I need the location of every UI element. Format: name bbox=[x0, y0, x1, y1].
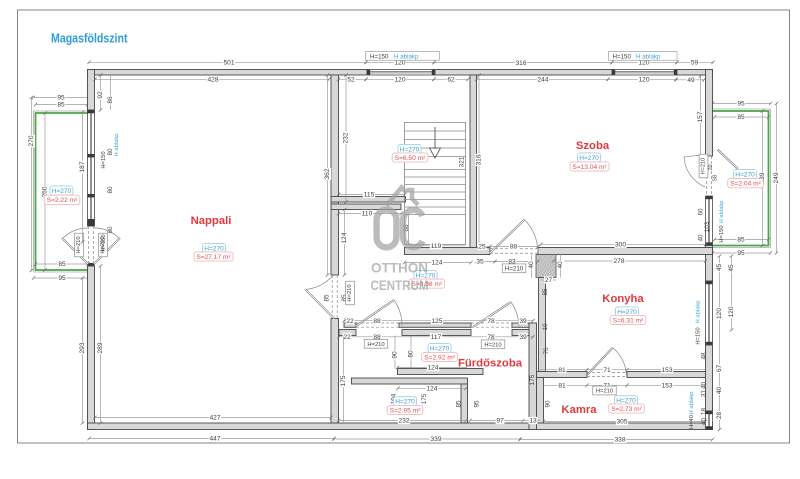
svg-text:H=40: H=40 bbox=[689, 415, 695, 429]
svg-text:289: 289 bbox=[97, 342, 104, 353]
svg-text:45: 45 bbox=[716, 264, 723, 272]
svg-text:60: 60 bbox=[107, 226, 114, 234]
svg-text:88: 88 bbox=[373, 318, 381, 325]
svg-text:H=150: H=150 bbox=[696, 327, 702, 344]
svg-text:103: 103 bbox=[704, 221, 711, 232]
svg-text:H ablakp: H ablakp bbox=[114, 134, 120, 157]
svg-text:153: 153 bbox=[661, 383, 672, 390]
svg-text:52: 52 bbox=[347, 77, 355, 84]
svg-text:40: 40 bbox=[528, 261, 535, 269]
svg-text:48: 48 bbox=[701, 352, 708, 360]
svg-text:H=210: H=210 bbox=[701, 158, 707, 174]
svg-text:85: 85 bbox=[57, 102, 65, 109]
svg-text:124: 124 bbox=[431, 260, 442, 267]
svg-text:316: 316 bbox=[476, 154, 483, 165]
svg-text:249: 249 bbox=[773, 172, 780, 183]
svg-text:S=6.50 m²: S=6.50 m² bbox=[395, 155, 426, 162]
svg-text:175: 175 bbox=[340, 375, 347, 386]
svg-text:125: 125 bbox=[431, 318, 442, 325]
svg-text:124: 124 bbox=[426, 386, 437, 393]
svg-text:80: 80 bbox=[408, 350, 415, 358]
svg-text:71: 71 bbox=[603, 367, 611, 374]
svg-text:H ablakp: H ablakp bbox=[696, 301, 702, 324]
svg-text:H=270: H=270 bbox=[52, 188, 72, 195]
svg-text:76: 76 bbox=[543, 347, 550, 355]
svg-text:Konyha: Konyha bbox=[602, 293, 644, 305]
svg-text:H ablakp: H ablakp bbox=[689, 392, 695, 415]
svg-text:67: 67 bbox=[716, 365, 723, 373]
svg-text:124: 124 bbox=[341, 232, 348, 243]
svg-text:31: 31 bbox=[701, 390, 708, 398]
svg-text:90: 90 bbox=[392, 351, 399, 359]
svg-text:H=150: H=150 bbox=[613, 53, 632, 60]
svg-text:40: 40 bbox=[716, 387, 723, 395]
svg-text:13: 13 bbox=[529, 418, 537, 425]
svg-text:Kamra: Kamra bbox=[561, 404, 597, 416]
svg-text:110: 110 bbox=[362, 211, 373, 218]
svg-text:447: 447 bbox=[209, 436, 220, 443]
svg-text:95: 95 bbox=[474, 400, 481, 408]
svg-text:81: 81 bbox=[558, 383, 566, 390]
svg-text:H=210: H=210 bbox=[505, 266, 524, 273]
svg-text:S=2.92 m²: S=2.92 m² bbox=[424, 354, 455, 361]
svg-text:18: 18 bbox=[701, 408, 708, 416]
svg-text:35: 35 bbox=[476, 259, 484, 266]
svg-text:H=150: H=150 bbox=[370, 53, 389, 60]
svg-text:175: 175 bbox=[529, 374, 536, 385]
svg-text:60: 60 bbox=[698, 208, 705, 216]
svg-text:278: 278 bbox=[613, 258, 624, 265]
svg-text:117: 117 bbox=[431, 334, 442, 341]
svg-text:22: 22 bbox=[343, 334, 351, 341]
svg-text:40: 40 bbox=[698, 234, 705, 242]
svg-text:85: 85 bbox=[542, 288, 549, 296]
svg-text:S=2.04 m²: S=2.04 m² bbox=[730, 181, 761, 188]
svg-text:H=210: H=210 bbox=[484, 343, 501, 349]
svg-text:339: 339 bbox=[430, 436, 441, 443]
svg-text:92: 92 bbox=[97, 91, 104, 99]
svg-text:427: 427 bbox=[209, 415, 220, 422]
svg-text:70: 70 bbox=[708, 164, 714, 170]
svg-text:H=270: H=270 bbox=[204, 245, 224, 252]
svg-text:78: 78 bbox=[487, 318, 495, 325]
svg-text:S=2.95 m²: S=2.95 m² bbox=[390, 407, 421, 414]
svg-text:244: 244 bbox=[537, 77, 548, 84]
svg-text:OTTHON: OTTHON bbox=[371, 261, 428, 276]
svg-text:90: 90 bbox=[545, 400, 552, 408]
svg-text:119: 119 bbox=[431, 243, 442, 250]
svg-text:H=210: H=210 bbox=[367, 342, 384, 348]
svg-text:S=13.04 m²: S=13.04 m² bbox=[572, 164, 607, 171]
svg-text:153: 153 bbox=[661, 367, 672, 374]
svg-text:175: 175 bbox=[421, 393, 428, 404]
svg-text:95: 95 bbox=[737, 101, 745, 108]
svg-text:Magasföldszint: Magasföldszint bbox=[51, 31, 128, 46]
svg-text:H=270: H=270 bbox=[430, 346, 450, 353]
svg-text:62: 62 bbox=[447, 77, 455, 84]
svg-text:362: 362 bbox=[324, 168, 331, 179]
svg-text:H=150: H=150 bbox=[719, 225, 725, 242]
svg-text:187: 187 bbox=[79, 161, 86, 172]
svg-text:H=210: H=210 bbox=[76, 236, 82, 253]
svg-text:CENTRUM: CENTRUM bbox=[371, 278, 429, 293]
svg-text:85: 85 bbox=[58, 261, 66, 268]
svg-text:45: 45 bbox=[728, 264, 735, 272]
svg-text:428: 428 bbox=[207, 77, 218, 84]
svg-text:95: 95 bbox=[58, 275, 66, 282]
svg-text:S=6.31 m²: S=6.31 m² bbox=[613, 317, 644, 324]
svg-text:120: 120 bbox=[394, 77, 405, 84]
svg-text:H=270: H=270 bbox=[617, 309, 637, 316]
svg-text:120: 120 bbox=[638, 77, 649, 84]
svg-text:H=270: H=270 bbox=[579, 155, 599, 162]
svg-text:S=2.22 m²: S=2.22 m² bbox=[47, 197, 78, 204]
svg-text:H=210: H=210 bbox=[347, 284, 353, 301]
svg-text:S=2.73 m²: S=2.73 m² bbox=[611, 406, 642, 413]
svg-text:270: 270 bbox=[28, 135, 35, 146]
svg-text:120: 120 bbox=[716, 308, 723, 319]
svg-text:59: 59 bbox=[691, 60, 699, 67]
svg-text:85: 85 bbox=[737, 237, 745, 244]
svg-text:H ablakp: H ablakp bbox=[394, 53, 419, 60]
svg-text:95: 95 bbox=[57, 95, 65, 102]
svg-text:49: 49 bbox=[687, 77, 695, 84]
svg-text:40: 40 bbox=[557, 261, 564, 269]
svg-text:501: 501 bbox=[223, 60, 234, 67]
svg-text:85: 85 bbox=[324, 294, 331, 302]
svg-text:27: 27 bbox=[545, 277, 553, 284]
svg-text:H=270: H=270 bbox=[735, 171, 755, 178]
svg-text:124: 124 bbox=[427, 365, 438, 372]
svg-text:H=270: H=270 bbox=[400, 146, 420, 153]
svg-text:115: 115 bbox=[364, 192, 375, 199]
svg-text:120: 120 bbox=[728, 306, 735, 317]
svg-text:300: 300 bbox=[615, 242, 626, 249]
svg-text:S=27.17 m²: S=27.17 m² bbox=[196, 254, 231, 261]
svg-text:H=270: H=270 bbox=[395, 399, 415, 406]
svg-text:85: 85 bbox=[737, 114, 745, 121]
svg-text:25: 25 bbox=[478, 244, 486, 251]
svg-text:95: 95 bbox=[737, 250, 745, 257]
svg-text:H=210: H=210 bbox=[596, 389, 613, 395]
svg-text:80: 80 bbox=[107, 148, 114, 156]
svg-text:H ablakp: H ablakp bbox=[636, 53, 661, 60]
svg-text:39: 39 bbox=[519, 318, 527, 325]
svg-text:39: 39 bbox=[519, 334, 527, 341]
svg-text:316: 316 bbox=[515, 60, 526, 67]
svg-text:232: 232 bbox=[343, 132, 350, 143]
svg-text:80: 80 bbox=[107, 186, 114, 194]
svg-text:88: 88 bbox=[510, 244, 518, 251]
svg-text:305: 305 bbox=[616, 419, 627, 426]
svg-text:22: 22 bbox=[346, 318, 354, 325]
svg-text:97: 97 bbox=[496, 418, 504, 425]
svg-text:Szoba: Szoba bbox=[576, 140, 610, 152]
svg-text:H=150: H=150 bbox=[101, 151, 107, 168]
svg-text:85: 85 bbox=[456, 400, 463, 408]
svg-text:232: 232 bbox=[398, 418, 409, 425]
svg-text:338: 338 bbox=[614, 437, 625, 444]
svg-text:Fürdőszoba: Fürdőszoba bbox=[458, 358, 523, 370]
svg-text:H ablakp: H ablakp bbox=[719, 201, 725, 224]
svg-text:293: 293 bbox=[79, 342, 86, 353]
svg-text:58: 58 bbox=[713, 175, 719, 181]
svg-text:81: 81 bbox=[558, 367, 566, 374]
svg-text:321: 321 bbox=[459, 156, 466, 167]
svg-text:H=150: H=150 bbox=[101, 234, 107, 251]
svg-text:28: 28 bbox=[716, 412, 723, 420]
svg-text:Nappali: Nappali bbox=[191, 215, 232, 227]
svg-text:157: 157 bbox=[697, 111, 704, 122]
svg-text:10: 10 bbox=[542, 323, 549, 331]
svg-text:86: 86 bbox=[107, 96, 114, 104]
svg-text:40: 40 bbox=[701, 418, 708, 426]
